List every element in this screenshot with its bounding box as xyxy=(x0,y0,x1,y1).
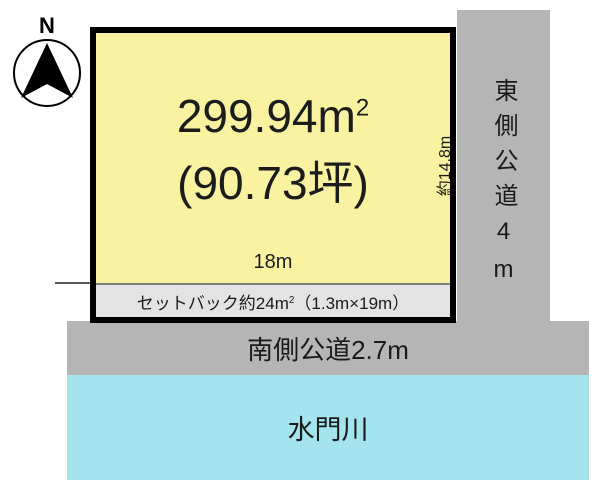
east-road-label: 東側公道4m xyxy=(457,78,550,294)
compass: N xyxy=(9,14,85,114)
plot-area-text: 299.94m2 (90.73坪) xyxy=(96,83,450,217)
frontage-label: 18m xyxy=(96,251,450,273)
depth-label: 約14.8m xyxy=(437,126,455,206)
setback-dimension-line xyxy=(55,282,95,284)
south-road: 南側公道2.7m xyxy=(67,321,589,375)
river-label: 水門川 xyxy=(288,408,369,447)
area-tsubo: (90.73坪) xyxy=(96,150,450,217)
north-label: N xyxy=(9,14,85,38)
river: 水門川 xyxy=(67,375,589,480)
land-plot: 299.94m2 (90.73坪) 18m 約14.8m セットバック約24m2… xyxy=(90,27,456,323)
south-road-label: 南側公道2.7m xyxy=(247,330,409,367)
land-plot-diagram: N 東側公道4m 南側公道2.7m 水門川 299.94m2 (90.73坪) … xyxy=(0,0,600,494)
squared-superscript: 2 xyxy=(356,95,369,122)
north-arrow-icon xyxy=(9,36,85,112)
area-value: 299.94m2 xyxy=(96,83,450,150)
setback-strip: セットバック約24m2（1.3m×19m） xyxy=(96,285,450,317)
